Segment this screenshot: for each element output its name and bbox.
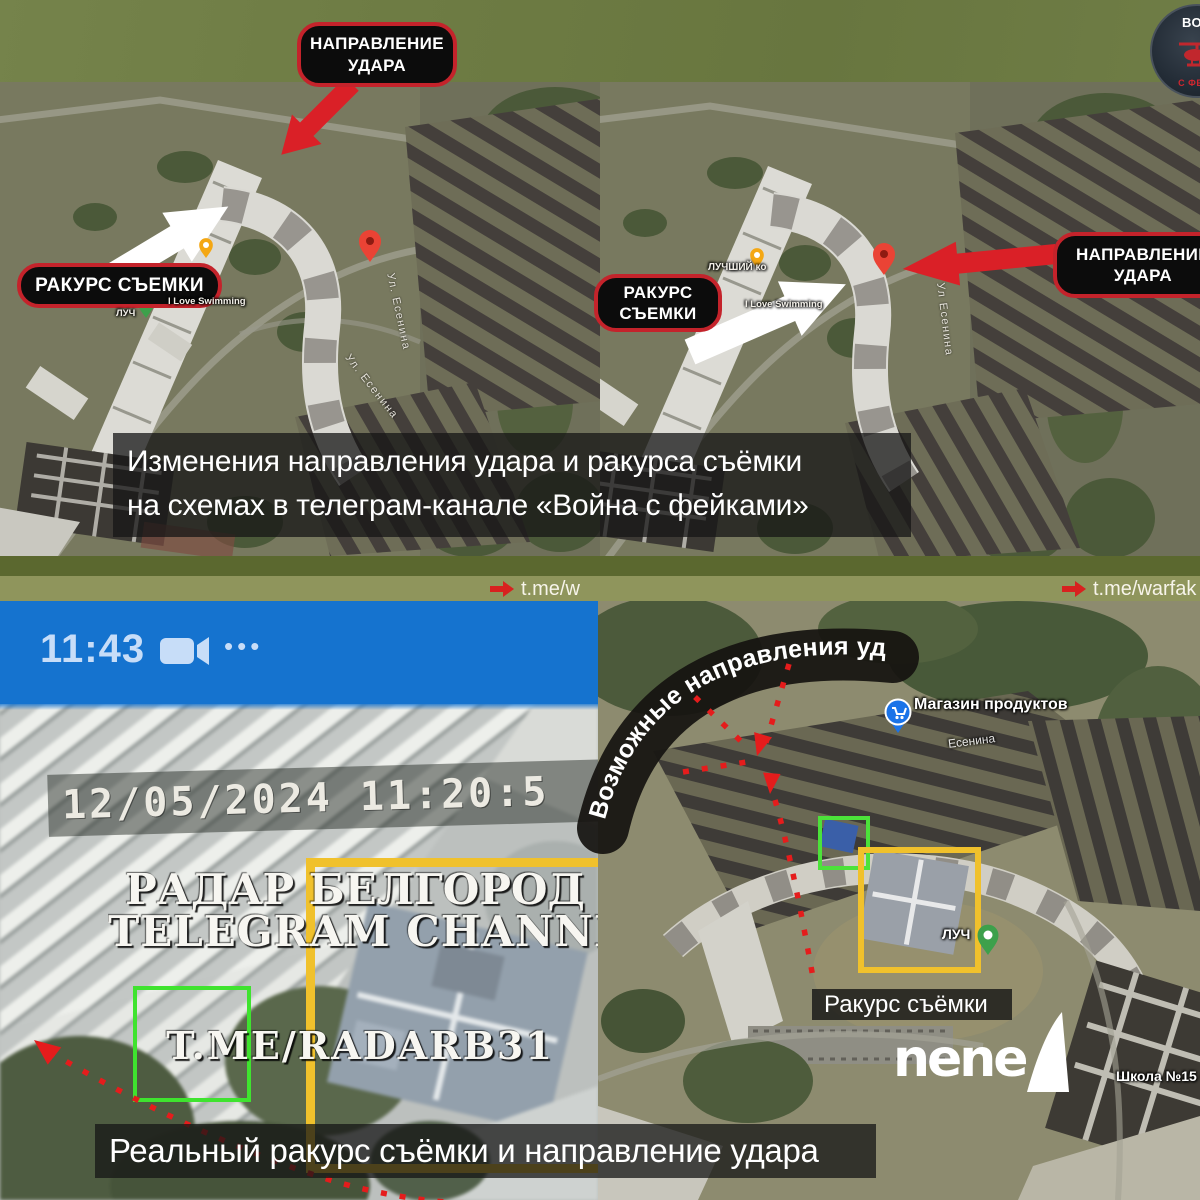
top-olive-banner (0, 0, 1200, 82)
caption-line: на схемах в телеграм-канале «Война с фей… (127, 484, 897, 528)
pill-line: РАКУРС СЪЕМКИ (35, 274, 204, 298)
poi-label-best-right: ЛУЧШИЙ ко (708, 262, 766, 273)
watermark-handle: T.ME/RADARB31 (150, 1023, 570, 1068)
logo-bottom-text: С ФЕЙК (1178, 78, 1200, 88)
nene-watermark-wordmark: nene (893, 1029, 1026, 1089)
phone-status-bar: 11:43 ••• (0, 601, 598, 704)
helicopter-icon (1175, 39, 1200, 69)
caption-bottom-banner: Реальный ракурс съёмки и направление уда… (95, 1124, 876, 1178)
poi-label-luch: ЛУЧ (942, 926, 970, 942)
caption-top-banner: Изменения направления удара и ракурса съ… (113, 433, 911, 537)
overflow-menu-dots: ••• (224, 631, 263, 662)
red-arrow-icon (490, 581, 514, 597)
logo-top-text: ВОЙ (1182, 15, 1200, 30)
pill-line: НАПРАВЛЕНИЕ (1076, 244, 1200, 265)
red-arrow-icon (1062, 581, 1086, 597)
telegram-link-text: t.me/warfak (1093, 578, 1196, 601)
poi-label-grocery-store: Магазин продуктов (914, 696, 1068, 714)
caption-line: Изменения направления удара и ракурса съ… (127, 440, 897, 484)
camera-angle-caption-bottom-map: Ракурс съёмки (812, 989, 1012, 1020)
watermark-subtitle: TELEGRAM CHANNEL (108, 907, 598, 956)
telegram-link-right: t.me/warfak (1062, 577, 1200, 601)
strike-direction-label-left-map: НАПРАВЛЕНИЕ УДАРА (297, 22, 457, 87)
telegram-link-text: t.me/w (521, 578, 580, 601)
poi-label-swimming-right: I Love Swimming (745, 299, 823, 310)
infographic-image: 11:43 ••• 12/05/2024 11:20:5 РАДАР БЕЛГО… (0, 0, 1200, 1200)
cctv-video-still: 11:43 ••• 12/05/2024 11:20:5 РАДАР БЕЛГО… (0, 601, 598, 1200)
satellite-map-bottom-right (598, 601, 1200, 1200)
divider-strip-light (0, 576, 1200, 601)
poi-label-school: Школа №15 «Л (1116, 1068, 1200, 1084)
divider-strip-dark (0, 556, 1200, 576)
poi-label-luchik-left: ЛУЧ (116, 308, 135, 319)
video-camera-icon (160, 635, 212, 667)
nene-watermark-triangle-icon (1024, 1010, 1072, 1094)
status-bar-clock: 11:43 (40, 627, 145, 672)
telegram-link-left: t.me/w (490, 577, 598, 601)
camera-angle-label-right-map: РАКУРС СЪЕМКИ (594, 274, 722, 332)
pill-line: УДАРА (1114, 265, 1172, 286)
strike-direction-label-right-map: НАПРАВЛЕНИЕ УДАРА (1053, 232, 1200, 298)
highlight-box-yellow-map (858, 847, 981, 973)
poi-label-swimming-left: I Love Swimming (168, 296, 246, 307)
pill-line: УДАРА (348, 55, 406, 76)
pill-line: СЪЕМКИ (619, 303, 696, 324)
pill-line: НАПРАВЛЕНИЕ (310, 33, 444, 54)
pill-line: РАКУРС (623, 282, 692, 303)
